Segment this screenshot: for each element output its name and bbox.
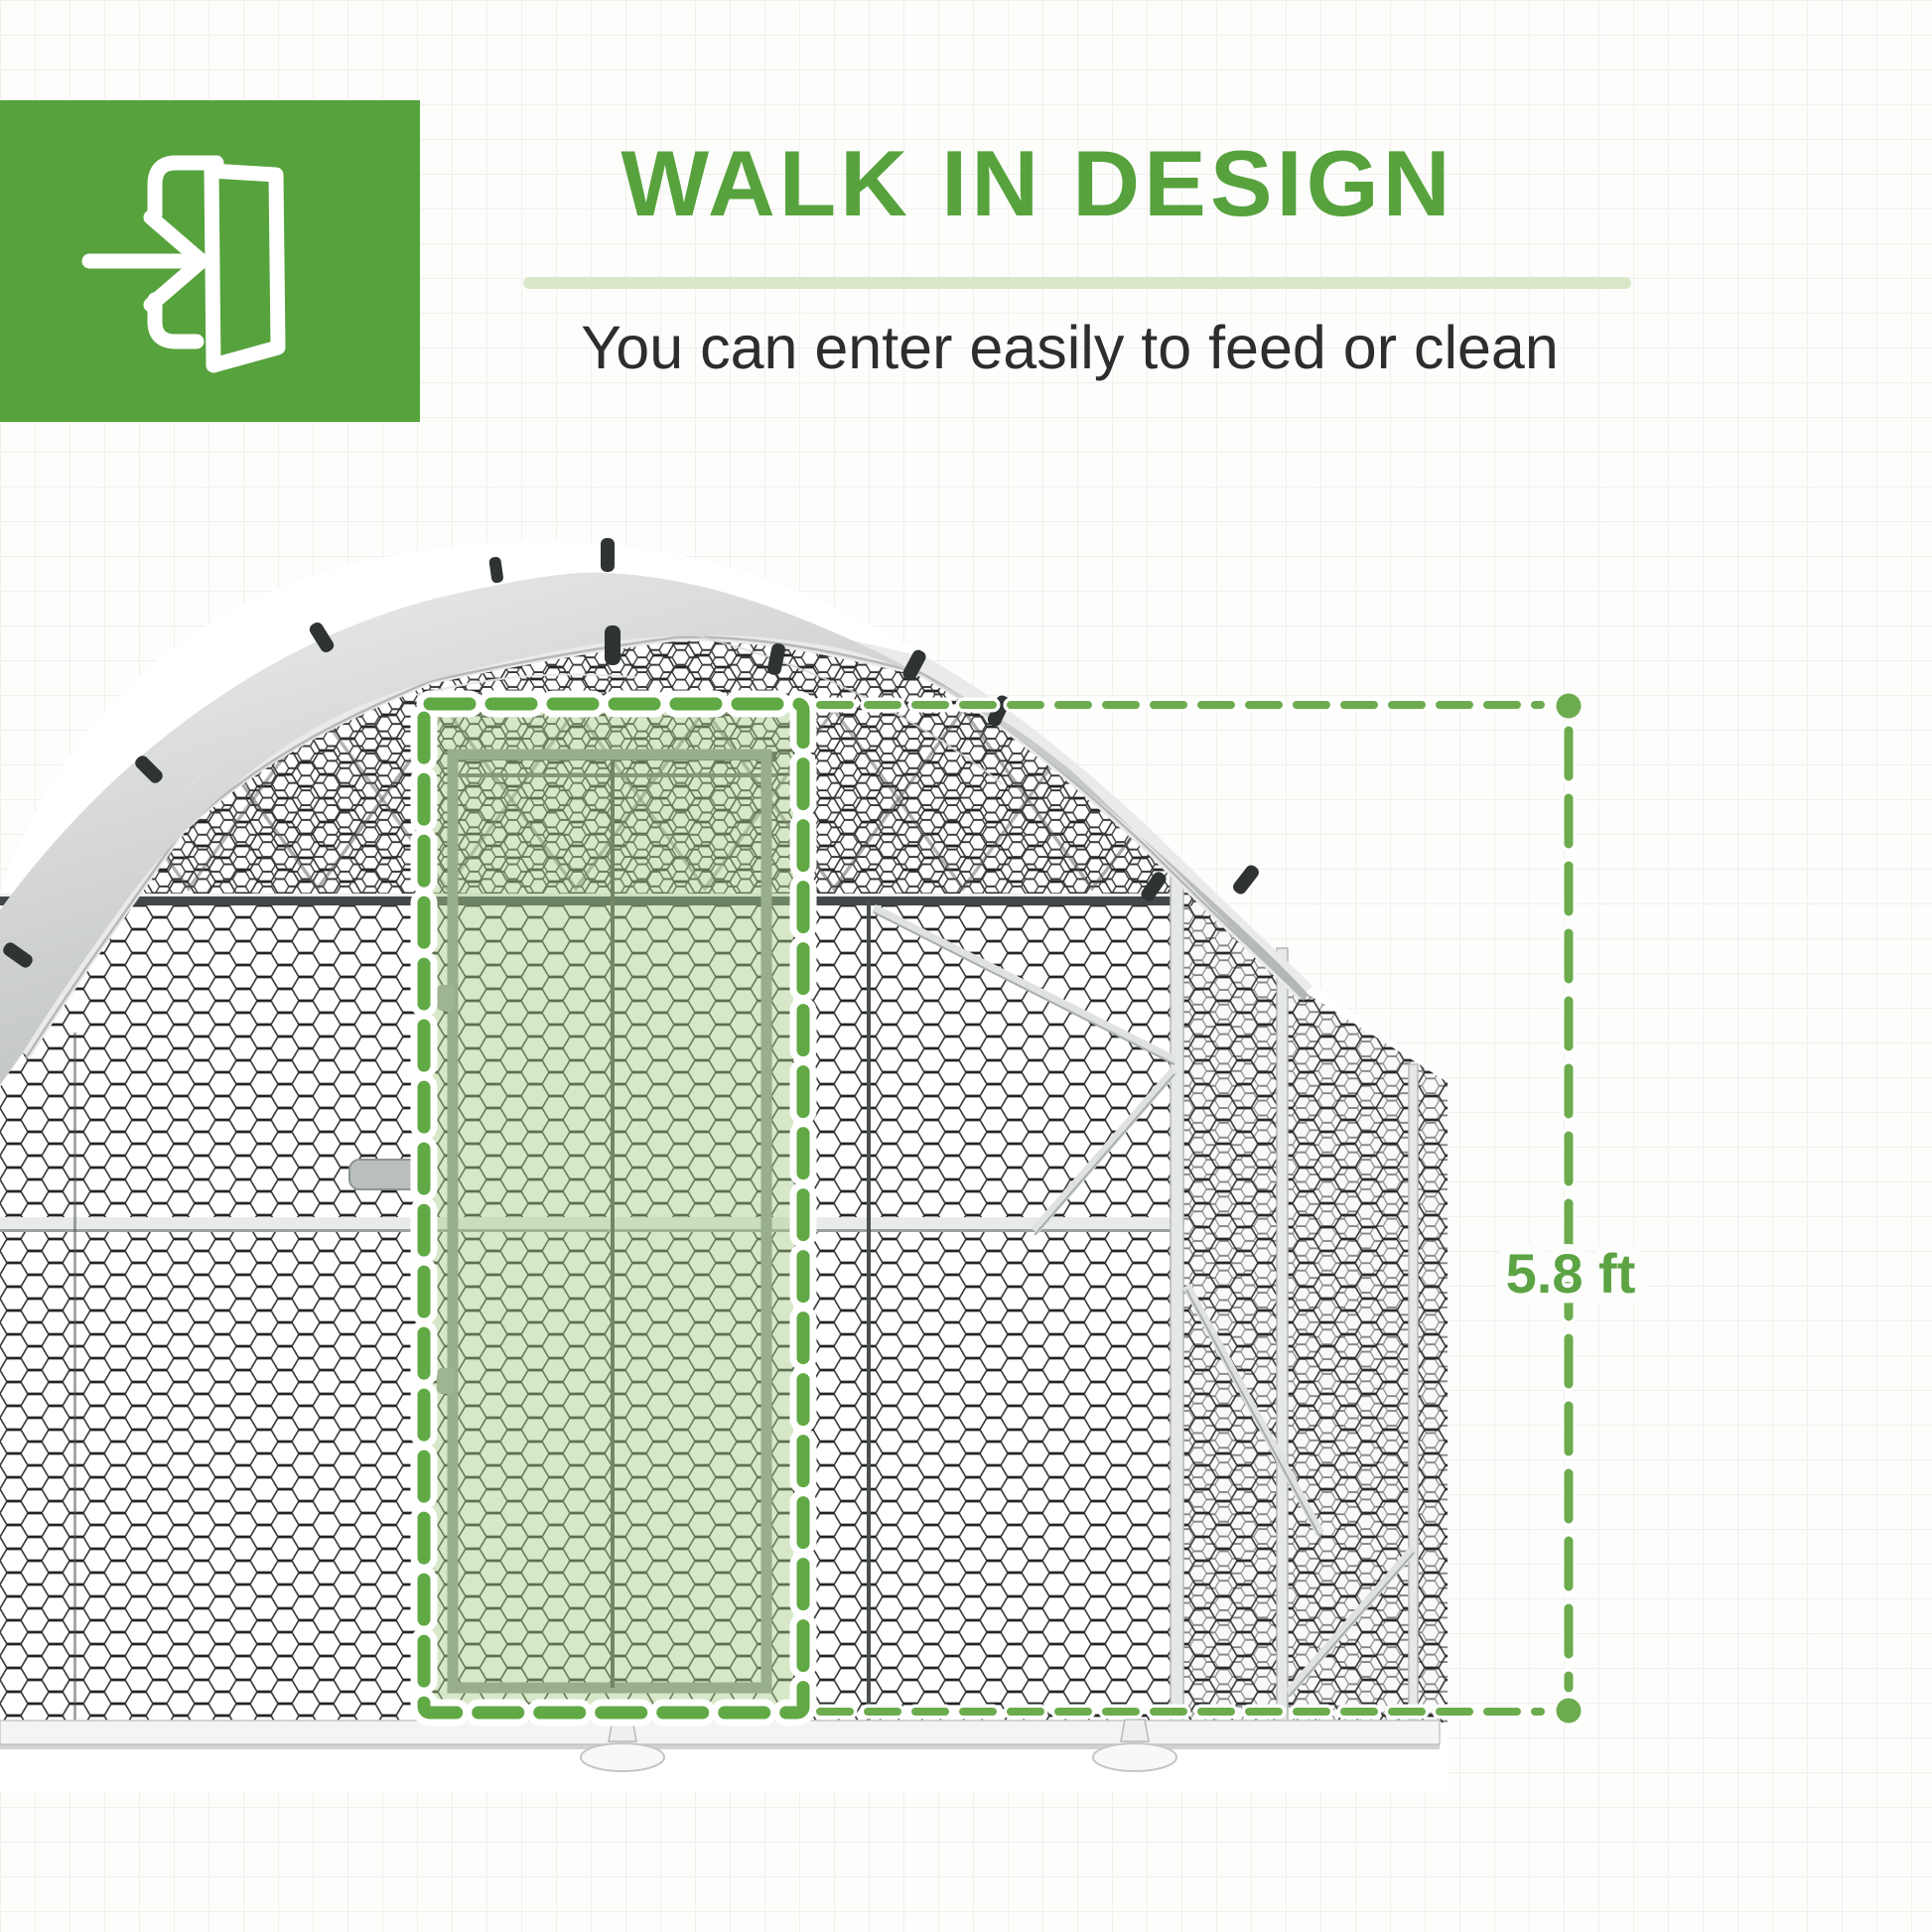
page-title: WALK IN DESIGN	[397, 137, 1678, 230]
title-divider	[523, 277, 1631, 289]
dimension-dot-top	[1557, 694, 1582, 719]
dimension-dot-bottom	[1557, 1699, 1582, 1724]
front-post	[867, 901, 871, 1723]
door-enter-icon	[0, 100, 420, 422]
page-subtitle: You can enter easily to feed or clean	[397, 318, 1742, 378]
walk-in-badge	[0, 100, 420, 422]
height-label: 5.8 ft	[1506, 1242, 1636, 1305]
door-leaf	[211, 171, 278, 365]
back-corner-post	[1409, 1064, 1418, 1720]
side-post	[1277, 948, 1288, 1725]
door-frame-bottom	[155, 300, 197, 342]
front-corner-post	[1171, 874, 1183, 1723]
door-tint	[430, 712, 793, 1705]
